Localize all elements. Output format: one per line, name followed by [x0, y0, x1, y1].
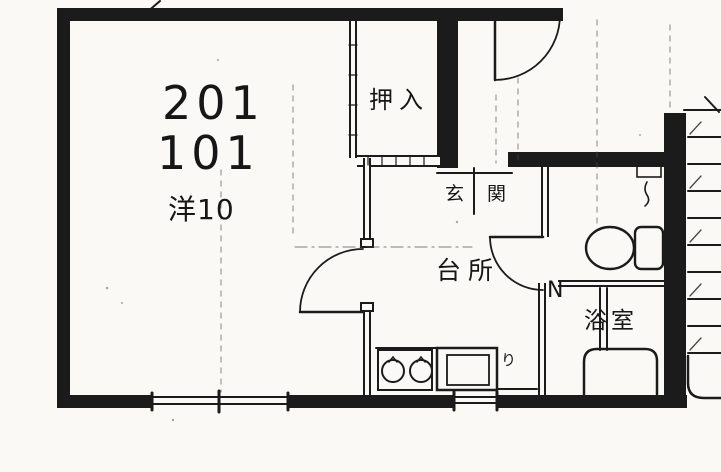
label-kitchen: 台所 [436, 258, 500, 283]
toilet-icon [586, 227, 663, 269]
closet-door-hatches [368, 157, 424, 165]
utility-mark: り [501, 353, 516, 368]
label-bathroom: 浴室 [584, 310, 638, 333]
unit-number-101: 101 [157, 130, 260, 176]
stove-icon [378, 350, 432, 390]
window-main-room [150, 391, 290, 412]
grid-lines [221, 20, 670, 392]
toilet-window-mark [637, 164, 661, 206]
label-entrance: 玄関 [445, 185, 529, 204]
window-kitchen [454, 392, 497, 410]
wall-break-mark [146, 1, 160, 13]
unit-number-201: 201 [162, 80, 265, 126]
plan-linework [0, 0, 721, 472]
wall-hatches [349, 45, 357, 135]
entry-door-swing [495, 13, 560, 80]
label-main-room: 洋10 [168, 196, 235, 224]
floor-plan: 201 101 洋10 押入 玄関 台所 浴室 N り [0, 0, 721, 472]
room-door-swing [300, 249, 363, 312]
label-closet: 押入 [369, 88, 429, 112]
staircase-icon [684, 97, 721, 398]
door-direction-mark: N [547, 280, 563, 302]
bathtub-icon [584, 349, 657, 394]
